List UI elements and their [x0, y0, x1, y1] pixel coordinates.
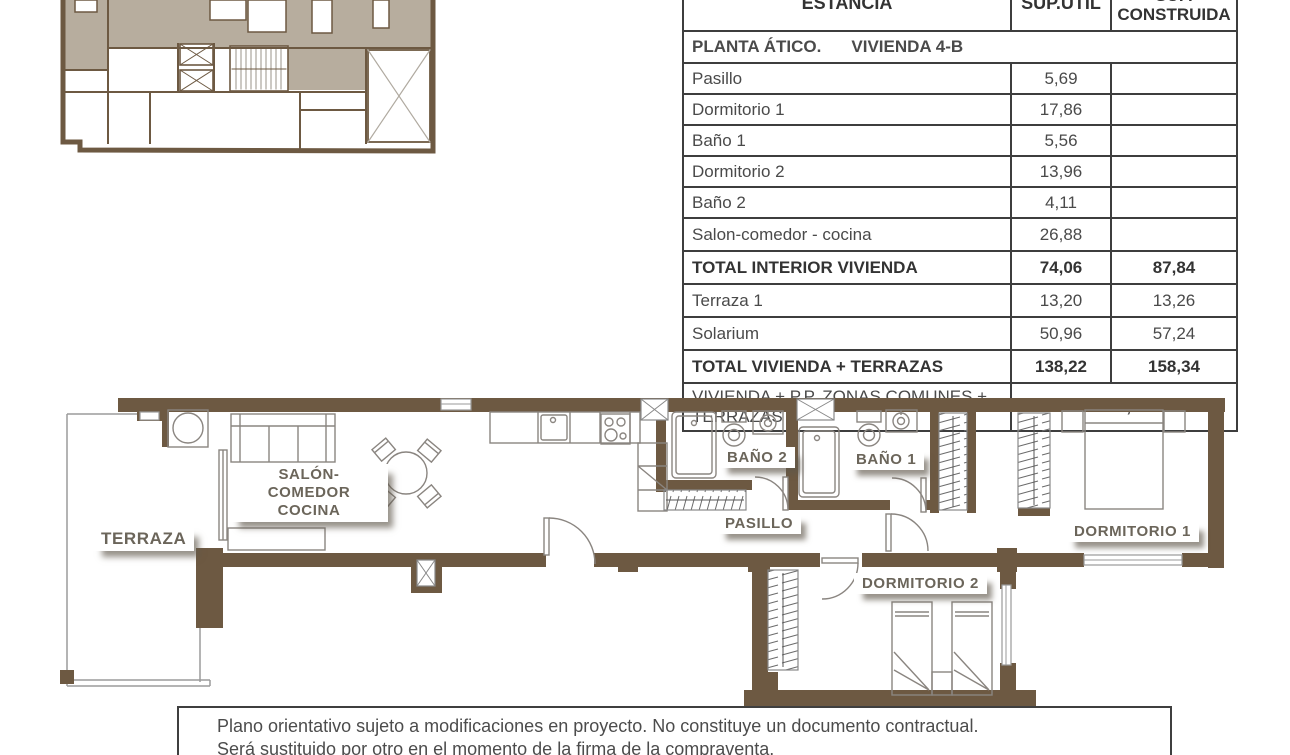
table-row-total-vivienda: TOTAL VIVIENDA + TERRAZAS 138,22 158,34 — [683, 350, 1237, 383]
sofa — [231, 414, 335, 462]
building-key-plan — [55, 0, 440, 160]
col-header-sup-util: SUP.ÚTIL — [1012, 0, 1110, 14]
room-label-pasillo: PASILLO — [717, 513, 801, 534]
washbasin-bano1 — [886, 410, 917, 432]
terraza-corner-step — [60, 670, 74, 684]
col-header-sup-construida: SUP. CONSTRUIDA — [1112, 0, 1236, 24]
double-bed — [1062, 410, 1185, 509]
table-row: Dormitorio 1 17,86 — [683, 94, 1237, 125]
floorplan-sheet: ESTANCIA SUP.ÚTIL SUP. CONSTRUIDA PLANTA… — [0, 0, 1290, 755]
room-label-bano2: BAÑO 2 — [719, 447, 795, 468]
table-row: Solarium 50,96 57,24 — [683, 317, 1237, 350]
table-row: Salon-comedor - cocina 26,88 — [683, 218, 1237, 251]
room-label-terraza: TERRAZA — [93, 527, 194, 551]
table-row: Baño 2 4,11 — [683, 187, 1237, 218]
area-table: ESTANCIA SUP.ÚTIL SUP. CONSTRUIDA PLANTA… — [682, 0, 1238, 432]
terraza-glass-door — [219, 450, 227, 540]
disclaimer-box: Plano orientativo sujeto a modificacione… — [177, 706, 1172, 755]
section-title-row: PLANTA ÁTICO.VIVIENDA 4-B — [683, 31, 1237, 63]
stove — [601, 414, 630, 444]
disclaimer-text: Plano orientativo sujeto a modificacione… — [179, 708, 1170, 755]
single-bed-1 — [892, 602, 932, 695]
toilet-bano2 — [722, 411, 746, 446]
apartment-floor-plan — [50, 390, 1235, 712]
nightstand — [1164, 411, 1185, 432]
section-title: PLANTA ÁTICO.VIVIENDA 4-B — [683, 31, 1237, 63]
shower-bano2 — [672, 412, 716, 478]
washer-niche — [168, 410, 208, 447]
kitchen-counter — [490, 412, 640, 443]
room-label-dormitorio1: DORMITORIO 1 — [1066, 521, 1199, 542]
col-header-estancia: ESTANCIA — [684, 0, 1010, 14]
shower-bano1 — [799, 427, 839, 497]
nightstand — [1062, 411, 1083, 432]
door-salon — [544, 518, 595, 564]
table-row: Pasillo 5,69 — [683, 63, 1237, 94]
table-header-row: ESTANCIA SUP.ÚTIL SUP. CONSTRUIDA — [683, 0, 1237, 31]
table-row: Baño 1 5,56 — [683, 125, 1237, 156]
table-row: Terraza 1 13,20 13,26 — [683, 284, 1237, 317]
door-bano1 — [892, 478, 926, 512]
room-label-bano1: BAÑO 1 — [848, 449, 924, 470]
washbasin-bano2 — [753, 411, 783, 434]
room-label-salon: SALÓN-COMEDOR COCINA — [230, 464, 388, 522]
washing-machine — [173, 413, 203, 443]
room-label-dormitorio2: DORMITORIO 2 — [854, 573, 987, 594]
door-hall — [886, 514, 928, 551]
table-row: Dormitorio 2 13,96 — [683, 156, 1237, 187]
sideboard — [228, 528, 325, 550]
toilet-bano1 — [857, 411, 881, 446]
single-bed-2 — [952, 602, 992, 695]
table-row-total-interior: TOTAL INTERIOR VIVIENDA 74,06 87,84 — [683, 251, 1237, 284]
door-dormitorio2 — [822, 558, 858, 599]
door-bano2 — [755, 477, 788, 510]
